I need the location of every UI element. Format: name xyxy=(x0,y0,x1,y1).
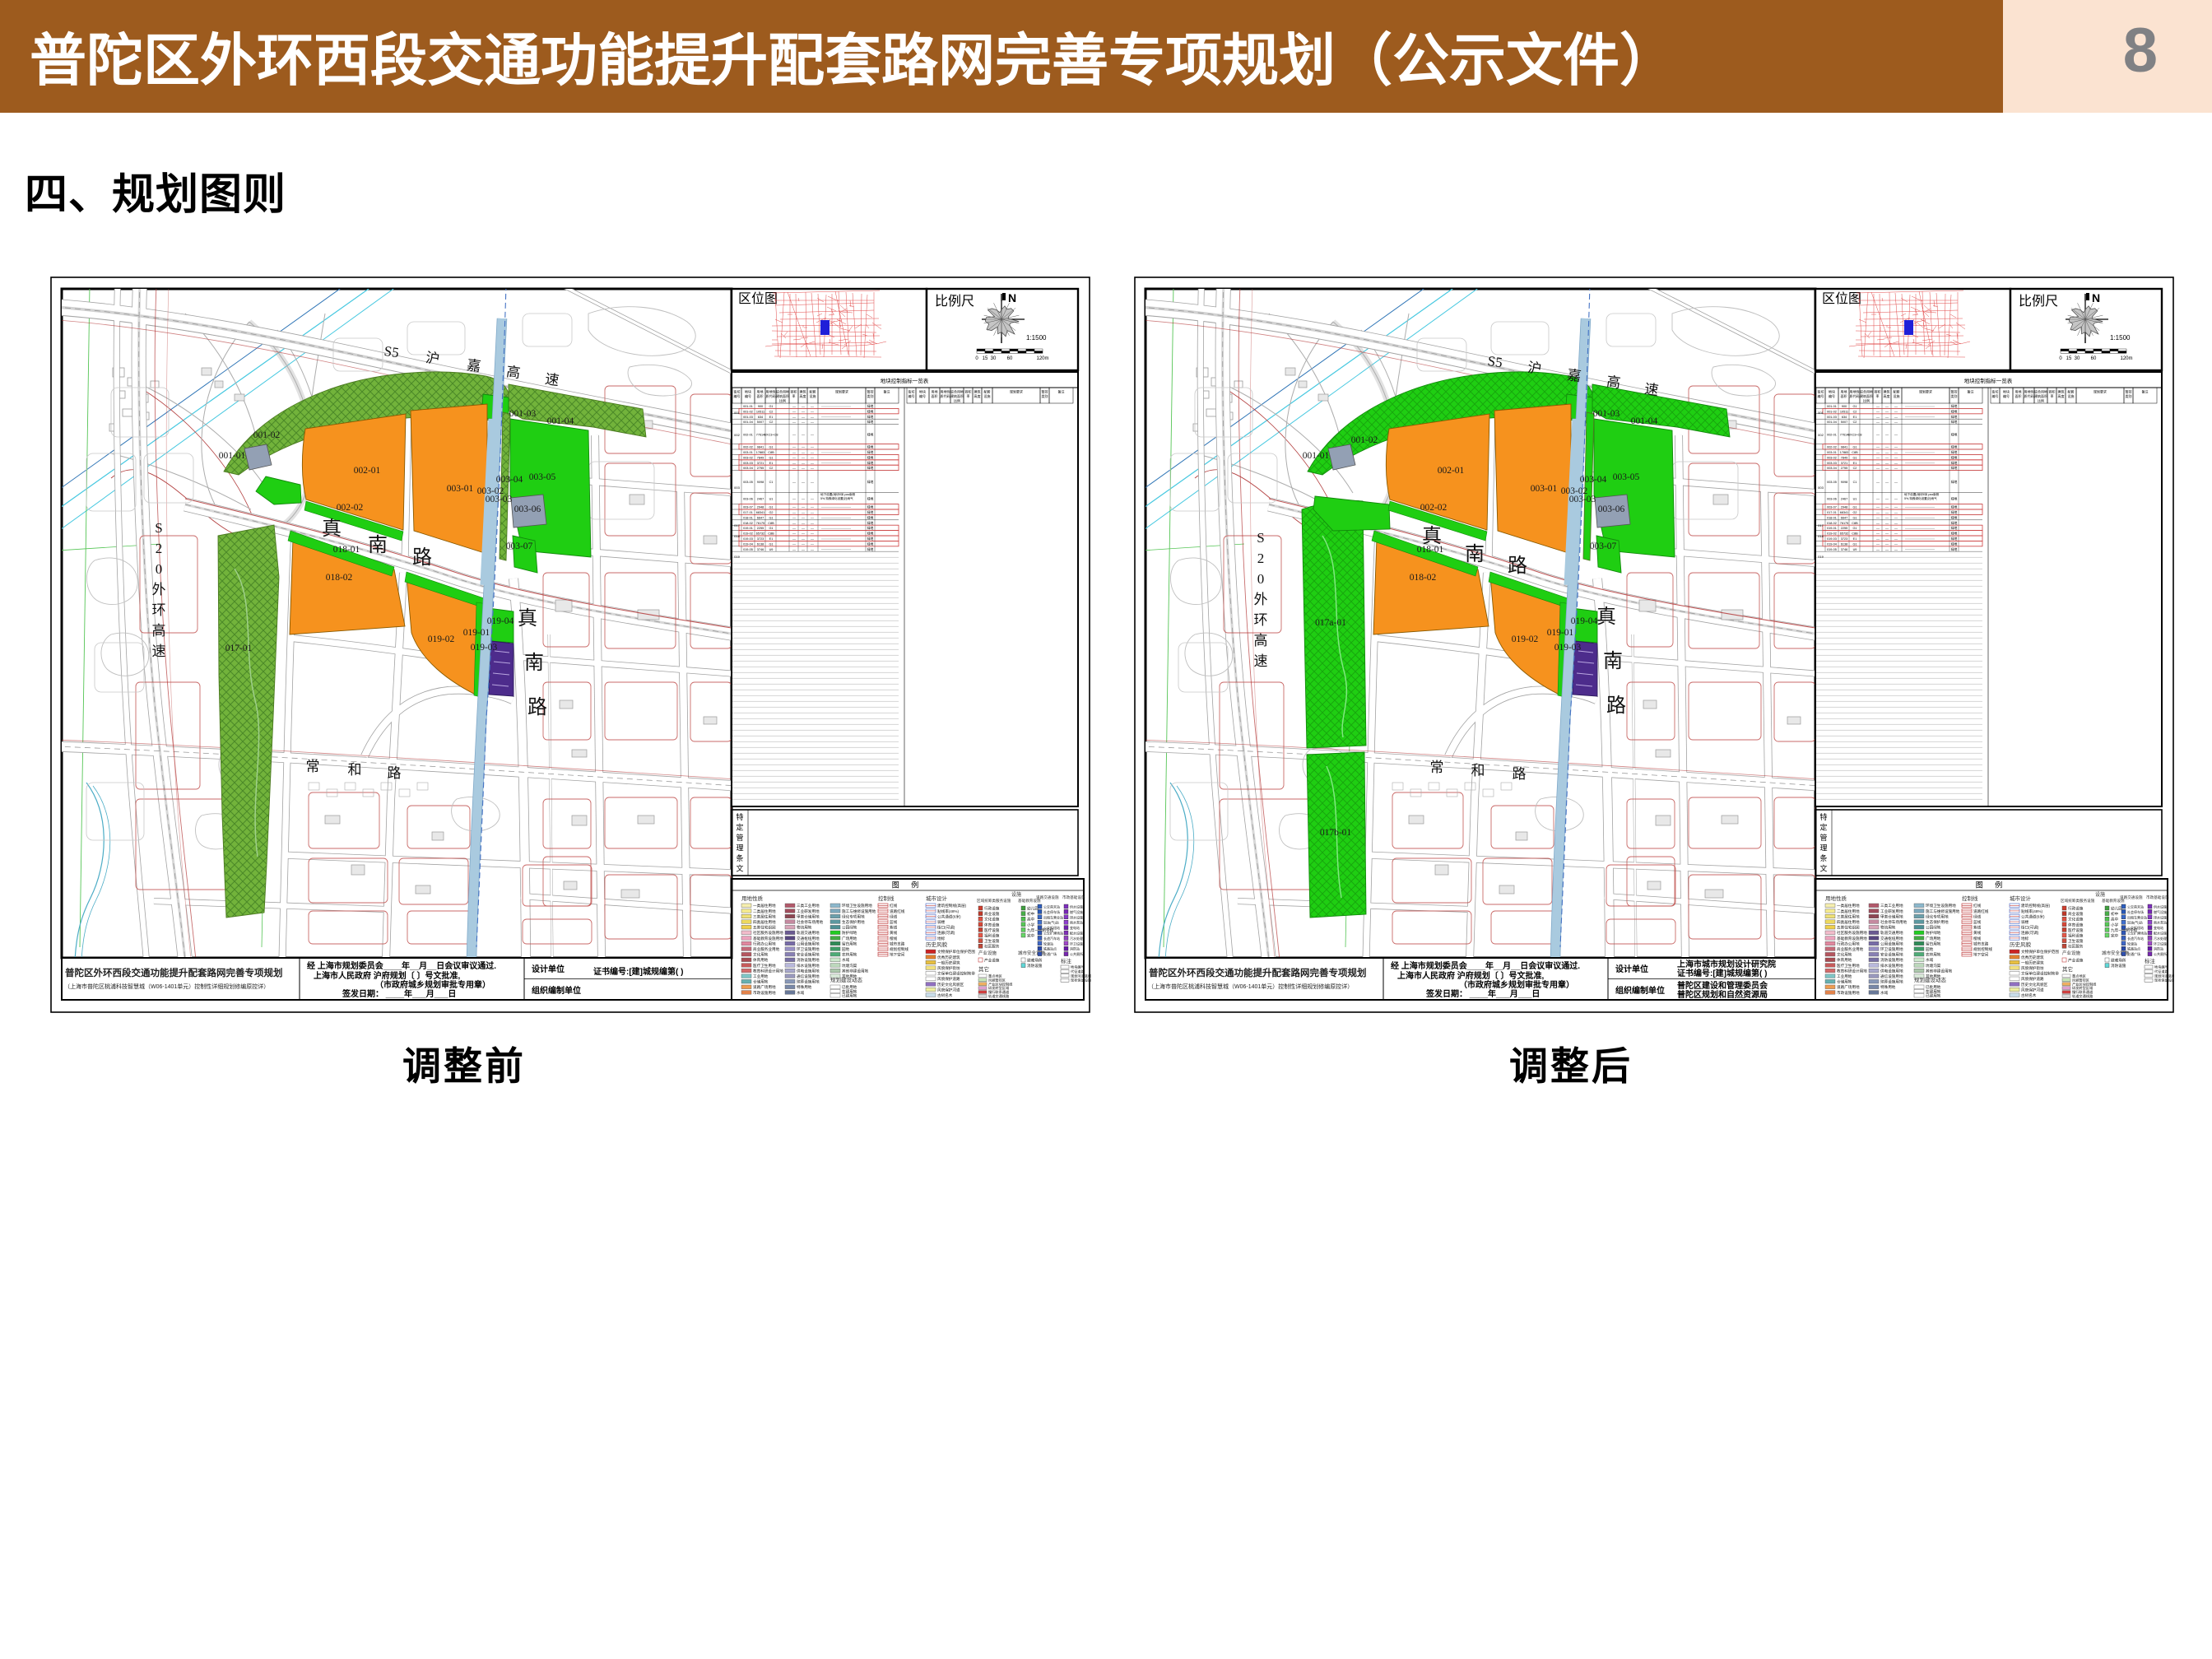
svg-text:交通广场: 交通广场 xyxy=(1043,951,1057,956)
svg-text:交通广场: 交通广场 xyxy=(2127,951,2140,956)
svg-text:G2: G2 xyxy=(769,511,773,514)
svg-text:交通枢纽用地: 交通枢纽用地 xyxy=(797,936,820,941)
svg-text:BXC3+C8: BXC3+C8 xyxy=(1848,433,1862,436)
svg-text:建筑面积: 建筑面积 xyxy=(776,393,789,398)
svg-text:交通枢纽用地: 交通枢纽用地 xyxy=(1880,936,1903,941)
svg-text:0: 0 xyxy=(156,561,163,577)
svg-text:外: 外 xyxy=(152,582,166,597)
svg-text:—: — xyxy=(792,505,796,509)
svg-text:—: — xyxy=(1885,537,1889,541)
svg-text:018-01: 018-01 xyxy=(1827,516,1837,519)
svg-text:绿地: 绿地 xyxy=(1951,526,1958,530)
svg-text:组织编制单位: 组织编制单位 xyxy=(532,985,581,996)
svg-text:风貌保护河道: 风貌保护河道 xyxy=(2021,987,2044,992)
svg-text:019-02: 019-02 xyxy=(428,634,455,644)
svg-text:区域统筹类服务设施: 区域统筹类服务设施 xyxy=(977,898,1011,904)
svg-text:—: — xyxy=(792,541,796,546)
svg-text:—: — xyxy=(792,510,796,514)
svg-text:—: — xyxy=(792,496,796,500)
svg-text:—: — xyxy=(792,450,796,454)
svg-text:文化用地: 文化用地 xyxy=(1837,952,1852,958)
svg-text:备注: 备注 xyxy=(1058,389,1065,394)
svg-text:完中: 完中 xyxy=(2111,933,2119,939)
svg-text:特殊用地: 特殊用地 xyxy=(1880,984,1896,990)
svg-text:容积: 容积 xyxy=(1875,389,1881,394)
svg-text:—: — xyxy=(1876,450,1880,454)
svg-text:文保单位建设控制地带: 文保单位建设控制地带 xyxy=(937,971,975,977)
svg-text:消防设施: 消防设施 xyxy=(2111,963,2126,969)
svg-text:甲类仓储用地: 甲类仓储用地 xyxy=(1880,913,1903,919)
svg-text:—: — xyxy=(792,466,796,470)
svg-text:634: 634 xyxy=(1842,416,1847,419)
svg-text:连廊(可调): 连廊(可调) xyxy=(937,930,955,936)
svg-text:环: 环 xyxy=(1254,612,1268,628)
svg-text:街坊: 街坊 xyxy=(1818,389,1824,394)
svg-text:G1: G1 xyxy=(1852,446,1856,449)
svg-text:规划控制线: 规划控制线 xyxy=(1973,946,1992,952)
svg-text:绿地: 绿地 xyxy=(1951,510,1958,514)
svg-text:—: — xyxy=(1885,420,1889,424)
svg-text:管控: 管控 xyxy=(1951,389,1958,394)
svg-text:—: — xyxy=(1885,510,1889,514)
svg-text:003-05: 003-05 xyxy=(1613,472,1640,482)
svg-text:市政设施用地: 市政设施用地 xyxy=(1837,990,1860,996)
svg-text:—: — xyxy=(1876,409,1880,413)
svg-text:003-04: 003-04 xyxy=(1580,475,1607,485)
svg-text:路: 路 xyxy=(412,546,432,569)
svg-text:003-07: 003-07 xyxy=(743,506,753,509)
svg-text:地块: 地块 xyxy=(919,389,926,394)
svg-text:其他非建设用地: 其他非建设用地 xyxy=(1926,968,1953,974)
svg-text:普陀区外环西段交通功能提升配套路网完善专项规划: 普陀区外环西段交通功能提升配套路网完善专项规划 xyxy=(65,967,283,978)
svg-text:017-01: 017-01 xyxy=(743,511,753,514)
svg-text:019-01: 019-01 xyxy=(743,527,753,530)
svg-text:高: 高 xyxy=(1254,633,1268,648)
svg-text:仓储用地: 仓储用地 xyxy=(753,979,769,985)
svg-text:003-07: 003-07 xyxy=(1827,506,1837,509)
svg-text:备注: 备注 xyxy=(2142,389,2149,394)
svg-text:铁路站点: 铁路站点 xyxy=(2127,946,2140,951)
svg-text:道路广场用地: 道路广场用地 xyxy=(753,984,776,990)
svg-text:产业设施: 产业设施 xyxy=(2068,958,2084,964)
svg-text:15: 15 xyxy=(983,356,988,361)
svg-text:—: — xyxy=(811,526,814,530)
svg-text:017-01: 017-01 xyxy=(225,644,253,653)
svg-text:比例尺: 比例尺 xyxy=(935,294,974,309)
svg-text:—: — xyxy=(1894,432,1898,436)
svg-text:绿地: 绿地 xyxy=(867,404,874,408)
svg-text:规划要求: 规划要求 xyxy=(835,389,848,394)
svg-text:建筑面积: 建筑面积 xyxy=(1860,393,1873,398)
svg-text:绿地: 绿地 xyxy=(1951,455,1958,459)
svg-text:68341: 68341 xyxy=(1840,511,1849,514)
svg-text:南: 南 xyxy=(368,534,388,556)
svg-text:消防设施用地: 消防设施用地 xyxy=(1880,957,1903,963)
svg-text:公用设施用地: 公用设施用地 xyxy=(797,941,820,946)
svg-text:65732: 65732 xyxy=(1840,532,1849,536)
svg-text:行政设施: 行政设施 xyxy=(2068,906,2084,912)
svg-text:E1: E1 xyxy=(769,416,774,419)
svg-text:2755: 2755 xyxy=(757,467,764,470)
svg-text:高: 高 xyxy=(505,364,521,381)
svg-text:—: — xyxy=(802,409,805,413)
svg-text:城市支路: 城市支路 xyxy=(890,941,905,946)
svg-text:2467: 2467 xyxy=(1841,497,1847,500)
svg-text:用地性: 用地性 xyxy=(941,389,950,394)
svg-text:物流用地: 物流用地 xyxy=(797,925,812,931)
svg-text:区位图: 区位图 xyxy=(738,291,778,306)
svg-text:用地性: 用地性 xyxy=(1850,389,1860,394)
svg-text:南: 南 xyxy=(1603,650,1623,672)
svg-text:C1: C1 xyxy=(1853,481,1857,484)
svg-text:比例: 比例 xyxy=(954,397,960,402)
svg-text:生态保护用地: 生态保护用地 xyxy=(1926,919,1949,925)
svg-text:产业设施: 产业设施 xyxy=(984,958,1000,964)
svg-text:C2: C2 xyxy=(769,421,774,424)
svg-text:—: — xyxy=(1885,432,1889,436)
svg-text:017b-01: 017b-01 xyxy=(1320,828,1352,838)
svg-text:1:1500: 1:1500 xyxy=(2110,334,2131,342)
svg-text:普陀区规划和自然资源局: 普陀区规划和自然资源局 xyxy=(1677,989,1768,1000)
svg-text:G1: G1 xyxy=(769,527,773,530)
svg-text:绿地: 绿地 xyxy=(867,450,874,454)
svg-text:003-05: 003-05 xyxy=(743,481,753,484)
svg-text:C8B: C8B xyxy=(768,522,774,525)
svg-text:001-04: 001-04 xyxy=(1631,416,1658,426)
svg-text:上海市人民政府 沪府规划〔 〕号文批准,: 上海市人民政府 沪府规划〔 〕号文批准, xyxy=(1397,970,1545,981)
svg-text:比例: 比例 xyxy=(2038,397,2044,402)
svg-text:坑塘沟渠: 坑塘沟渠 xyxy=(1926,963,1941,969)
svg-text:社会停车场用地: 社会停车场用地 xyxy=(797,919,824,925)
svg-text:019-03: 019-03 xyxy=(743,537,753,541)
svg-text:道路红线: 道路红线 xyxy=(1973,908,1989,914)
svg-text:G1: G1 xyxy=(1852,456,1856,459)
svg-text:—: — xyxy=(802,505,805,509)
svg-text:基础教育设施用地: 基础教育设施用地 xyxy=(753,936,783,941)
svg-text:市政基础设施: 市政基础设施 xyxy=(1062,895,1085,900)
svg-text:率: 率 xyxy=(1876,393,1880,398)
svg-text:一类居住用地: 一类居住用地 xyxy=(753,903,776,908)
svg-text:—: — xyxy=(1894,547,1898,551)
svg-text:绿地: 绿地 xyxy=(1951,537,1958,541)
svg-text:综合用地: 综合用地 xyxy=(2034,389,2047,394)
svg-text:S: S xyxy=(155,520,162,536)
svg-text:街口(可调): 街口(可调) xyxy=(2021,925,2039,931)
svg-text:类别: 类别 xyxy=(1042,393,1048,398)
svg-text:5007: 5007 xyxy=(757,421,764,424)
svg-text:001-03: 001-03 xyxy=(1593,409,1620,419)
svg-text:社会停车场用地: 社会停车场用地 xyxy=(1880,919,1908,925)
svg-text:现状保留设施: 现状保留设施 xyxy=(2154,978,2174,983)
svg-text:综合用地: 综合用地 xyxy=(1860,389,1873,394)
svg-text:绿地: 绿地 xyxy=(1951,461,1958,465)
svg-text:017a-01: 017a-01 xyxy=(1315,618,1346,628)
svg-text:2255: 2255 xyxy=(757,527,764,530)
svg-text:沪: 沪 xyxy=(425,350,440,367)
svg-text:—: — xyxy=(1876,526,1880,530)
svg-text:完中: 完中 xyxy=(1027,933,1035,939)
svg-text:真: 真 xyxy=(1596,606,1616,628)
svg-text:—: — xyxy=(1876,541,1880,546)
svg-text:外: 外 xyxy=(1254,592,1268,607)
svg-text:管: 管 xyxy=(736,833,743,842)
svg-text:消防设施: 消防设施 xyxy=(1027,963,1043,969)
svg-text:—: — xyxy=(1894,521,1898,525)
svg-text:市政设施用地: 市政设施用地 xyxy=(753,990,776,996)
svg-text:紫线: 紫线 xyxy=(1973,925,1982,930)
svg-text:商业设施: 商业设施 xyxy=(2068,911,2084,917)
svg-text:供水设施: 供水设施 xyxy=(1070,904,1083,909)
svg-text:风貌保护街坊: 风貌保护街坊 xyxy=(2021,965,2044,971)
svg-text:水域: 水域 xyxy=(1880,990,1889,995)
svg-text:控制线: 控制线 xyxy=(1962,895,1978,902)
svg-text:面积: 面积 xyxy=(932,393,938,398)
svg-text:—: — xyxy=(811,480,814,484)
svg-text:—: — xyxy=(1885,532,1889,536)
svg-text:文保单位建设控制地带: 文保单位建设控制地带 xyxy=(2021,971,2059,977)
svg-text:教育科研设计用地: 教育科研设计用地 xyxy=(753,968,783,974)
svg-text:社会停车场: 社会停车场 xyxy=(2127,909,2144,914)
svg-text:—: — xyxy=(811,521,814,525)
svg-text:—: — xyxy=(1876,537,1880,541)
svg-text:C8B: C8B xyxy=(768,532,774,536)
svg-text:绿地: 绿地 xyxy=(867,415,874,419)
svg-text:五类住宅组团: 五类住宅组团 xyxy=(753,925,776,931)
svg-text:003: 003 xyxy=(734,486,740,490)
svg-text:002-01: 002-01 xyxy=(354,466,381,476)
svg-text:—: — xyxy=(1894,541,1898,546)
svg-text:C1: C1 xyxy=(769,481,774,484)
svg-text:—: — xyxy=(1876,420,1880,424)
svg-text:行政设施: 行政设施 xyxy=(984,906,1000,912)
svg-text:001-01: 001-01 xyxy=(219,451,246,461)
svg-text:—: — xyxy=(802,480,805,484)
svg-text:设施: 设施 xyxy=(1011,891,1021,898)
svg-text:工业用地: 工业用地 xyxy=(753,974,769,979)
svg-text:003-01: 003-01 xyxy=(743,451,753,454)
svg-text:污水处理: 污水处理 xyxy=(2154,936,2167,941)
svg-text:建筑控制线(高层): 建筑控制线(高层) xyxy=(937,903,967,908)
svg-text:紫线: 紫线 xyxy=(890,925,898,930)
svg-text:6647: 6647 xyxy=(1841,516,1847,519)
svg-text:002-01: 002-01 xyxy=(1827,433,1837,436)
svg-text:G1: G1 xyxy=(1852,527,1856,530)
svg-text:红线: 红线 xyxy=(1973,903,1982,908)
svg-text:—: — xyxy=(1885,541,1889,546)
svg-text:风貌保护街坊: 风貌保护街坊 xyxy=(937,965,960,971)
svg-text:设施: 设施 xyxy=(2068,393,2075,398)
svg-text:G1: G1 xyxy=(769,446,773,449)
svg-text:用地: 用地 xyxy=(932,389,938,394)
svg-text:—: — xyxy=(802,547,805,551)
svg-text:2467: 2467 xyxy=(757,497,764,500)
svg-text:7849: 7849 xyxy=(757,456,764,459)
svg-text:002-01: 002-01 xyxy=(1438,466,1465,476)
svg-text:—: — xyxy=(1876,510,1880,514)
svg-text:标注: 标注 xyxy=(1061,957,1072,964)
svg-text:用地: 用地 xyxy=(757,389,764,394)
svg-text:高度: 高度 xyxy=(974,393,981,398)
svg-text:定: 定 xyxy=(1819,823,1827,832)
svg-text:绿地: 绿地 xyxy=(867,547,874,551)
svg-text:C8B: C8B xyxy=(1852,532,1858,536)
svg-text:小学: 小学 xyxy=(2111,922,2119,927)
svg-text:（市政府城乡规划审批专用章）: （市政府城乡规划审批专用章） xyxy=(1459,979,1574,990)
svg-text:率: 率 xyxy=(967,393,970,398)
svg-text:—: — xyxy=(811,420,814,424)
svg-text:上海市人民政府 沪府规划〔 〕号文批准,: 上海市人民政府 沪府规划〔 〕号文批准, xyxy=(314,970,461,981)
svg-text:骑楼: 骑楼 xyxy=(2021,919,2029,925)
svg-text:公用设施用地: 公用设施用地 xyxy=(1880,941,1903,946)
svg-text:地下空间: 地下空间 xyxy=(1973,952,1989,958)
svg-text:017: 017 xyxy=(734,523,740,527)
svg-text:橙线: 橙线 xyxy=(1973,936,1982,941)
svg-text:建筑: 建筑 xyxy=(974,389,981,394)
svg-text:U1: U1 xyxy=(1853,497,1857,500)
svg-text:—: — xyxy=(792,404,796,408)
svg-text:编号: 编号 xyxy=(908,393,915,398)
svg-text:019: 019 xyxy=(734,555,740,559)
svg-text:二类居住用地: 二类居住用地 xyxy=(1837,908,1860,914)
svg-text:002: 002 xyxy=(1818,433,1824,437)
svg-text:—: — xyxy=(1876,515,1880,519)
svg-text:（上海市普陀区桃浦科技智慧城（W06-1401单元）控制性详: （上海市普陀区桃浦科技智慧城（W06-1401单元）控制性详细规划修编原控详） xyxy=(1148,983,1353,990)
svg-text:019-01: 019-01 xyxy=(1827,527,1837,530)
svg-text:—: — xyxy=(811,532,814,536)
svg-text:地块控制指标一览表: 地块控制指标一览表 xyxy=(881,377,929,384)
svg-text:17883: 17883 xyxy=(756,451,765,454)
svg-text:003-03: 003-03 xyxy=(1827,462,1837,465)
svg-text:003-03: 003-03 xyxy=(486,495,513,504)
svg-text:—: — xyxy=(802,541,805,546)
svg-text:地块: 地块 xyxy=(2003,389,2010,394)
svg-text:铁路站点: 铁路站点 xyxy=(1043,946,1057,951)
svg-text:003-02: 003-02 xyxy=(743,456,753,459)
svg-text:9098: 9098 xyxy=(1841,481,1847,484)
svg-text:市政基础设施: 市政基础设施 xyxy=(2146,895,2169,900)
svg-text:绿地: 绿地 xyxy=(1951,409,1958,413)
svg-text:—: — xyxy=(792,537,796,541)
svg-text:—: — xyxy=(1894,466,1898,470)
svg-text:幼儿园: 幼儿园 xyxy=(1027,906,1039,912)
svg-text:绿地: 绿地 xyxy=(867,420,874,424)
svg-text:其它: 其它 xyxy=(978,965,989,973)
svg-text:街坊: 街坊 xyxy=(734,389,741,394)
svg-text:019-03: 019-03 xyxy=(1554,643,1582,653)
svg-text:绿地: 绿地 xyxy=(867,455,874,459)
svg-text:—: — xyxy=(792,532,796,536)
svg-text:质代码: 质代码 xyxy=(941,393,950,398)
svg-text:医疗卫生用地: 医疗卫生用地 xyxy=(1837,963,1860,969)
svg-text:建筑面积: 建筑面积 xyxy=(950,393,964,398)
svg-text:C8B: C8B xyxy=(1852,522,1858,525)
svg-text:019-01: 019-01 xyxy=(463,628,490,638)
svg-text:社会停车场: 社会停车场 xyxy=(1043,909,1060,914)
svg-text:绿地: 绿地 xyxy=(1951,515,1958,519)
svg-text:四类居住用地: 四类居住用地 xyxy=(753,919,776,925)
svg-text:建筑: 建筑 xyxy=(1884,389,1890,394)
svg-text:雨水泵站: 雨水泵站 xyxy=(2154,920,2167,925)
svg-text:900: 900 xyxy=(758,405,763,408)
svg-text:编号: 编号 xyxy=(1992,393,1999,398)
svg-text:G1: G1 xyxy=(769,506,773,509)
svg-text:—: — xyxy=(1885,547,1889,551)
svg-text:—: — xyxy=(1894,510,1898,514)
svg-text:—: — xyxy=(1885,526,1889,530)
svg-text:C2: C2 xyxy=(1853,467,1857,470)
svg-text:设施: 设施 xyxy=(2095,891,2105,898)
svg-text:—: — xyxy=(802,532,805,536)
svg-text:文化设施: 文化设施 xyxy=(2068,917,2084,922)
svg-text:001-02: 001-02 xyxy=(1827,410,1837,413)
svg-text:绿化专项用地: 绿化专项用地 xyxy=(842,913,865,919)
svg-text:规划控制线: 规划控制线 xyxy=(890,946,908,952)
svg-text:已建用地: 已建用地 xyxy=(1926,993,1941,999)
svg-text:供水设施: 供水设施 xyxy=(2154,904,2167,909)
svg-text:体育设施: 体育设施 xyxy=(2068,922,2084,927)
svg-text:019-02: 019-02 xyxy=(1827,532,1837,536)
svg-text:公交扩建场站: 公交扩建场站 xyxy=(1043,931,1063,936)
svg-text:绿地: 绿地 xyxy=(1951,466,1958,470)
svg-text:—: — xyxy=(811,466,814,470)
svg-text:体育设施: 体育设施 xyxy=(984,922,1000,927)
svg-text:公园绿地: 公园绿地 xyxy=(842,925,857,931)
svg-text:绿地: 绿地 xyxy=(1951,547,1958,551)
svg-text:—: — xyxy=(811,461,814,465)
svg-text:特: 特 xyxy=(1819,812,1827,821)
svg-text:福利设施: 福利设施 xyxy=(2068,933,2084,939)
svg-text:—: — xyxy=(1894,480,1898,484)
svg-text:—: — xyxy=(1876,496,1880,500)
svg-text:G1: G1 xyxy=(769,542,773,546)
svg-text:证书编号:[建]城规编第( ): 证书编号:[建]城规编第( ) xyxy=(593,966,683,977)
svg-text:U9: U9 xyxy=(769,548,774,551)
svg-text:002: 002 xyxy=(734,433,740,437)
svg-text:001-03: 001-03 xyxy=(743,416,753,419)
svg-text:经 上海市规划委员会____年__月__日会议审议通过.: 经 上海市规划委员会____年__月__日会议审议通过. xyxy=(307,960,496,971)
svg-text:配水设施: 配水设施 xyxy=(2154,931,2167,936)
svg-text:社区服务: 社区服务 xyxy=(984,944,1000,950)
svg-text:排水设施: 排水设施 xyxy=(2154,914,2167,919)
svg-text:环卫设施: 环卫设施 xyxy=(1070,941,1083,946)
svg-text:经 上海市规划委员会____年__月__日会议审议通过.: 经 上海市规划委员会____年__月__日会议审议通过. xyxy=(1391,960,1580,971)
svg-text:003-04: 003-04 xyxy=(1827,467,1837,470)
svg-text:002-02: 002-02 xyxy=(1420,503,1448,513)
svg-text:019-04: 019-04 xyxy=(1571,616,1598,626)
svg-text:C8B: C8B xyxy=(768,451,774,454)
svg-text:—: — xyxy=(802,537,805,541)
svg-text:三类工业用地: 三类工业用地 xyxy=(797,903,820,908)
svg-text:理: 理 xyxy=(1819,844,1827,853)
svg-text:3746: 3746 xyxy=(757,548,764,551)
svg-text:初中: 初中 xyxy=(2111,911,2119,917)
svg-text:120m: 120m xyxy=(1036,356,1048,361)
svg-text:高中: 高中 xyxy=(2111,917,2119,922)
svg-text:—: — xyxy=(1885,521,1889,525)
svg-text:—: — xyxy=(802,461,805,465)
svg-text:文物保护单位保护范围: 文物保护单位保护范围 xyxy=(937,949,975,955)
svg-text:幼儿园: 幼儿园 xyxy=(2111,906,2122,912)
svg-text:和: 和 xyxy=(1471,763,1485,778)
svg-text:贴线率(48%): 贴线率(48%) xyxy=(937,908,960,914)
svg-text:福利设施: 福利设施 xyxy=(984,933,1000,939)
svg-text:—: — xyxy=(792,415,796,419)
svg-text:农林用地: 农林用地 xyxy=(842,952,857,958)
svg-text:—: — xyxy=(792,432,796,436)
svg-text:—: — xyxy=(811,450,814,454)
svg-text:003-06: 003-06 xyxy=(514,504,541,514)
svg-text:公交首末站: 公交首末站 xyxy=(2127,904,2144,909)
